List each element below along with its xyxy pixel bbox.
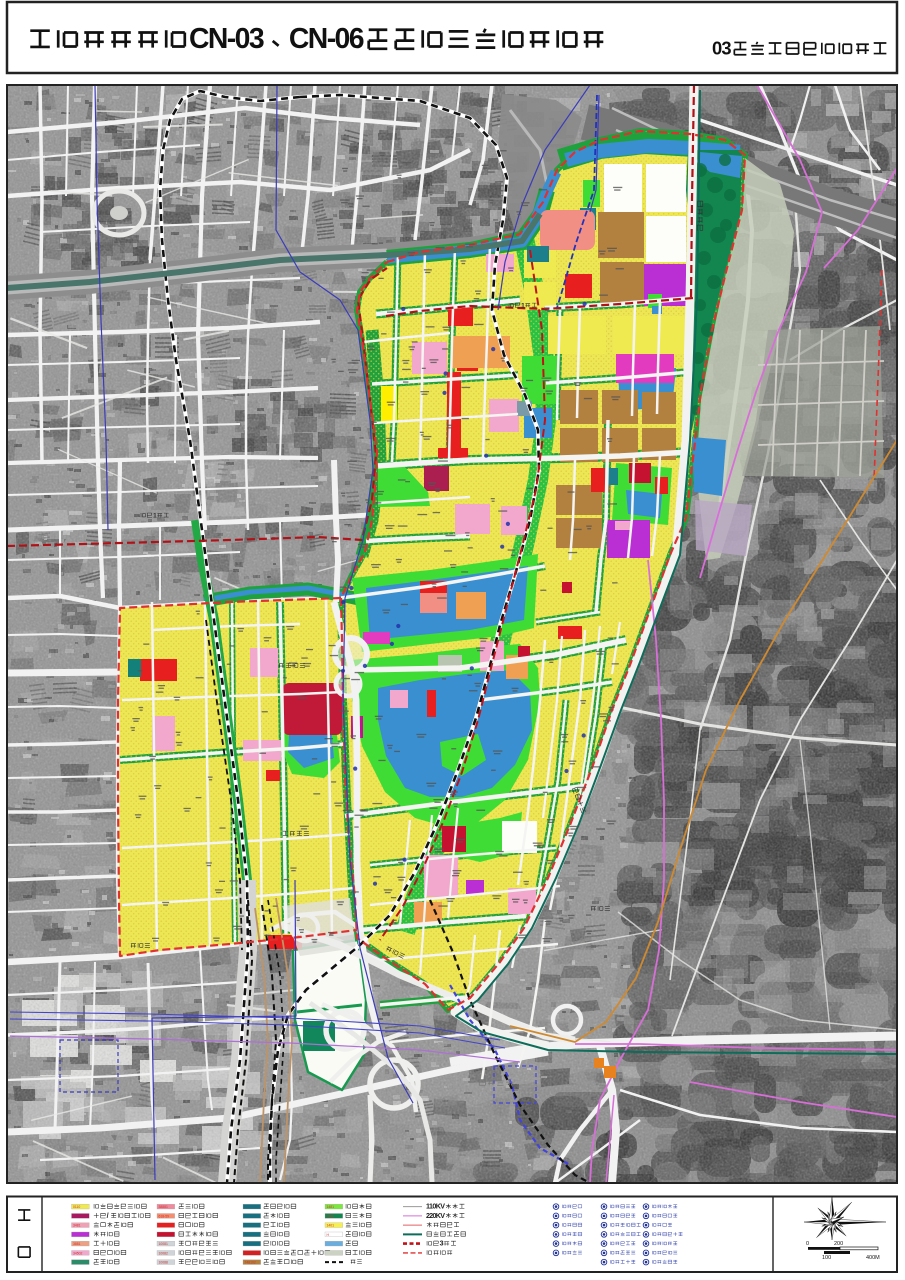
svg-text:/: / xyxy=(107,1212,109,1220)
svg-text:3881: 3881 xyxy=(73,1242,81,1246)
svg-text:1481: 1481 xyxy=(327,1205,335,1209)
svg-text:400M: 400M xyxy=(866,1255,880,1261)
svg-text:CN-03: CN-03 xyxy=(189,23,265,55)
svg-text:34502: 34502 xyxy=(73,1252,83,1256)
svg-text:CN-06: CN-06 xyxy=(289,23,365,55)
svg-text:38881: 38881 xyxy=(159,1205,169,1209)
svg-text:110KV: 110KV xyxy=(426,1203,445,1211)
svg-text:1: 1 xyxy=(153,512,157,519)
svg-text:10082: 10082 xyxy=(159,1252,169,1256)
svg-text:0110: 0110 xyxy=(73,1205,80,1209)
svg-text:100: 100 xyxy=(822,1255,831,1261)
svg-text:03: 03 xyxy=(712,37,732,58)
svg-text:748102: 748102 xyxy=(245,1261,256,1265)
svg-text:3481: 3481 xyxy=(73,1224,81,1228)
svg-text:1582: 1582 xyxy=(327,1215,335,1219)
svg-text:10088: 10088 xyxy=(159,1261,169,1265)
svg-text:200: 200 xyxy=(834,1241,843,1247)
svg-text:1: 1 xyxy=(521,302,525,309)
svg-text:3: 3 xyxy=(440,1240,444,1248)
svg-text:10081: 10081 xyxy=(159,1242,169,1246)
svg-text:220KV: 220KV xyxy=(426,1212,445,1220)
svg-text:1401: 1401 xyxy=(327,1224,335,1228)
svg-text:618-59: 618-59 xyxy=(159,1215,170,1219)
svg-text:0: 0 xyxy=(806,1241,809,1247)
